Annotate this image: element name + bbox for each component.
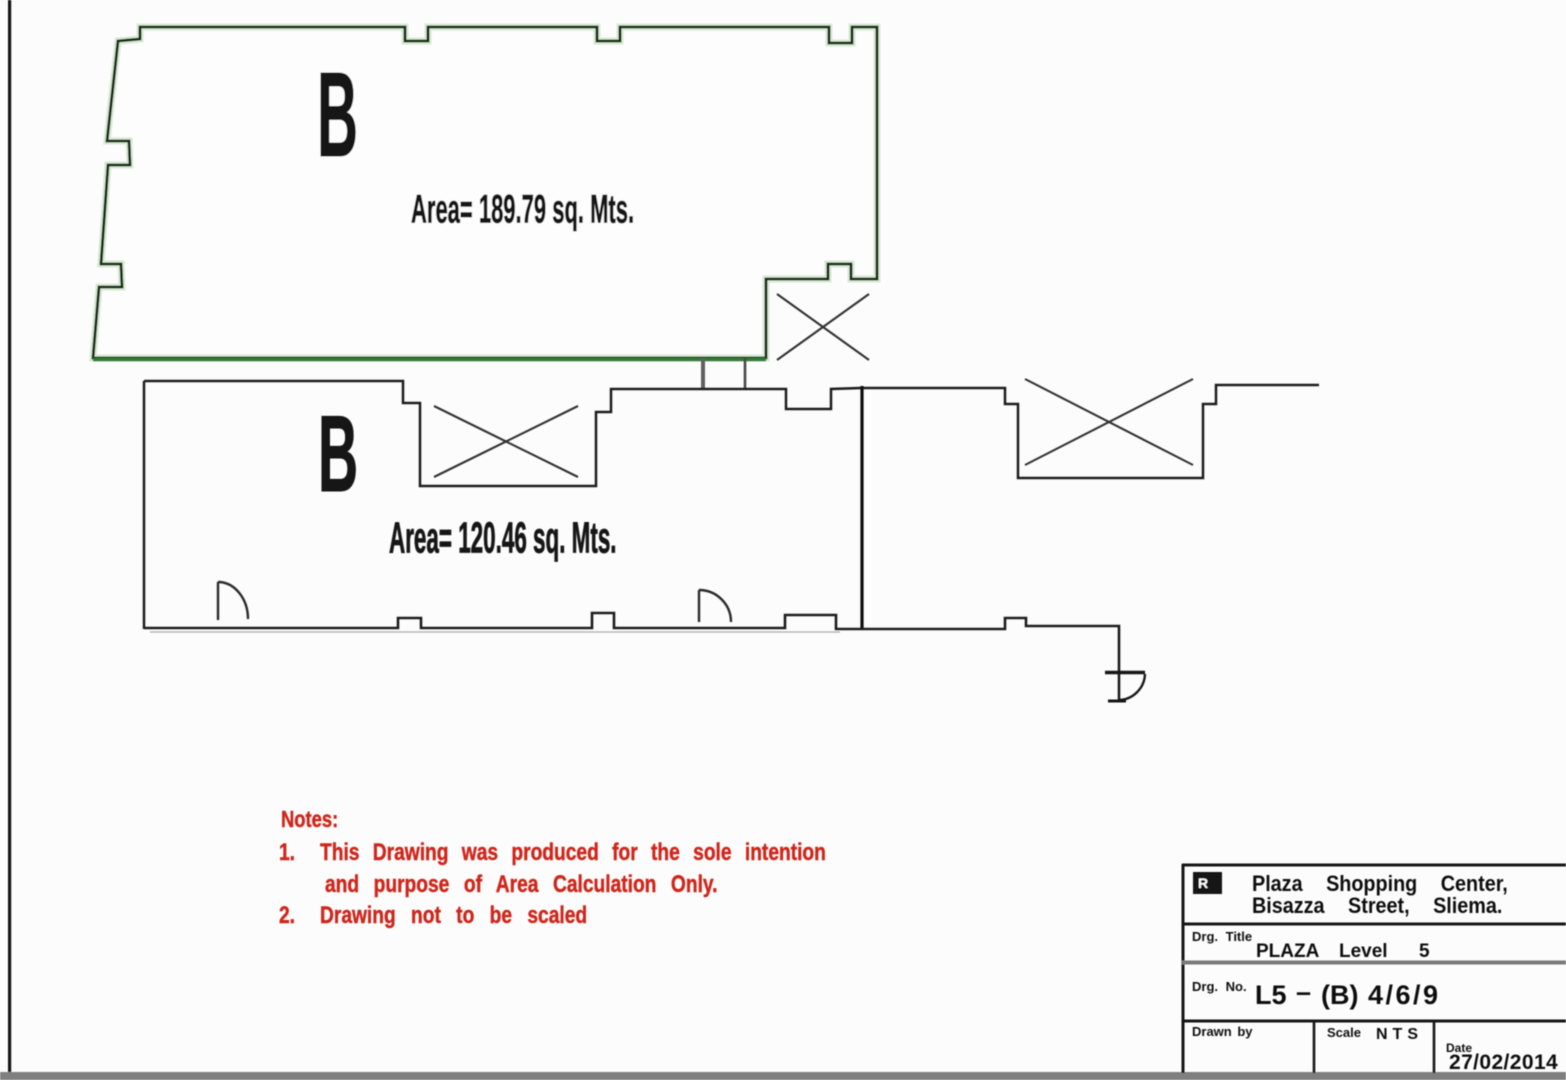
svg-text:1.: 1. bbox=[279, 838, 295, 866]
svg-text:B: B bbox=[318, 394, 358, 515]
svg-text:5: 5 bbox=[1419, 941, 1430, 962]
svg-text:Scale: Scale bbox=[1327, 1025, 1361, 1040]
svg-text:Level: Level bbox=[1339, 941, 1388, 962]
svg-text:–: – bbox=[1296, 977, 1311, 1007]
svg-text:4/6/9: 4/6/9 bbox=[1368, 980, 1441, 1010]
svg-text:NTS: NTS bbox=[1376, 1026, 1423, 1043]
svg-text:Area= 120.46 sq. Mts.: Area= 120.46 sq. Mts. bbox=[389, 513, 617, 562]
svg-text:and purpose of Area Calculatio: and purpose of Area Calculation Only. bbox=[325, 870, 718, 898]
svg-text:PLAZA: PLAZA bbox=[1256, 941, 1320, 962]
svg-text:(B): (B) bbox=[1321, 980, 1358, 1010]
svg-text:Drawn by: Drawn by bbox=[1192, 1024, 1253, 1039]
svg-text:Area= 189.79 sq. Mts.: Area= 189.79 sq. Mts. bbox=[411, 187, 634, 232]
svg-text:L5: L5 bbox=[1255, 980, 1287, 1010]
svg-text:R: R bbox=[1198, 875, 1208, 891]
svg-text:B: B bbox=[317, 47, 358, 183]
svg-text:Plaza Shopping Center,: Plaza Shopping Center, bbox=[1252, 872, 1508, 896]
svg-text:Drg. No.: Drg. No. bbox=[1192, 979, 1247, 994]
svg-text:2.: 2. bbox=[279, 901, 295, 929]
svg-text:27/02/2014: 27/02/2014 bbox=[1449, 1051, 1558, 1074]
svg-text:This Drawing was produced for: This Drawing was produced for the sole i… bbox=[320, 838, 826, 866]
svg-text:Notes:: Notes: bbox=[281, 807, 338, 832]
svg-text:Drg. Title: Drg. Title bbox=[1192, 929, 1252, 944]
svg-text:Bisazza Street, Sliema.: Bisazza Street, Sliema. bbox=[1252, 894, 1502, 918]
svg-text:Drawing not to be scaled: Drawing not to be scaled bbox=[320, 901, 587, 929]
